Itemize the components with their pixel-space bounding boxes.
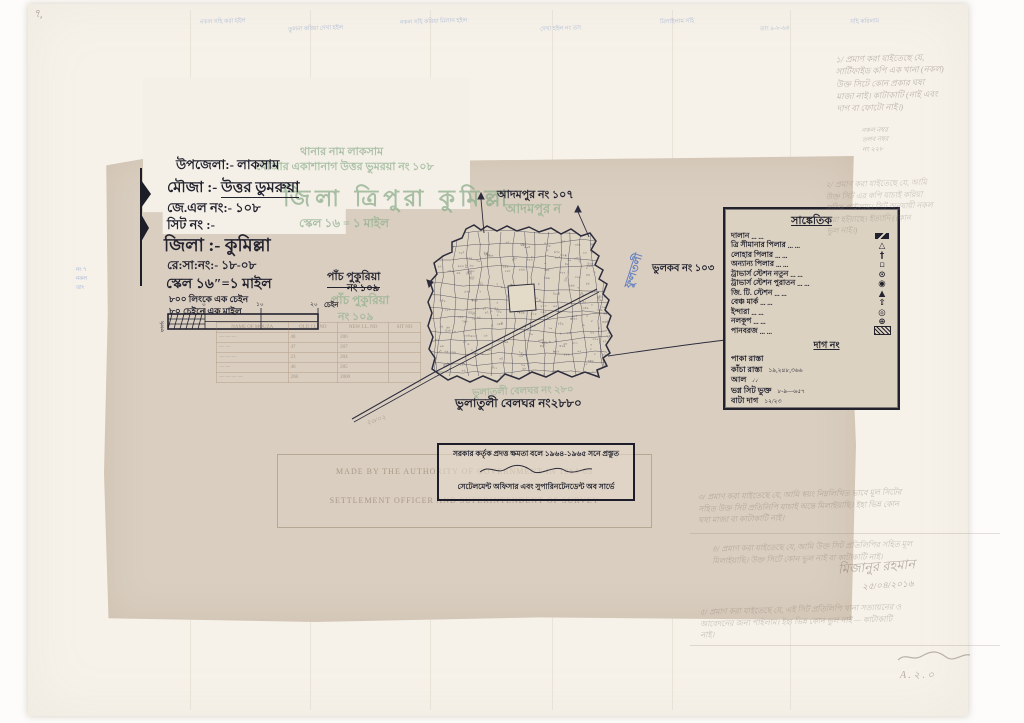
svg-text:৭৫: ৭৫ xyxy=(471,317,475,321)
svg-text:৯৫: ৯৫ xyxy=(553,304,557,308)
scanned-mouza-map-page: ৭, নকল সহি করা হইলতুলনা করিয়া দেখা হইলন… xyxy=(0,0,1024,723)
svg-text:৩১০: ৩১০ xyxy=(593,337,599,341)
svg-text:৬৭৫: ৬৭৫ xyxy=(554,250,560,254)
upazila-label: উপজেলা:- লাকসাম xyxy=(176,156,279,177)
top-margin-note: মিলাইলাম সহি xyxy=(660,15,695,27)
svg-text:০: ০ xyxy=(471,348,473,352)
svg-text:২৮৫: ২৮৫ xyxy=(478,283,484,287)
legend-symbol-icon: ▫ xyxy=(872,260,892,270)
svg-text:০৪৩: ০৪৩ xyxy=(574,256,580,260)
svg-text:৯: ৯ xyxy=(583,323,585,327)
svg-text:০৩৪: ০৩৪ xyxy=(538,338,544,342)
svg-text:৫: ৫ xyxy=(585,362,587,366)
legend-item: পানবরজ... ... xyxy=(731,327,892,337)
svg-text:৩৩৩: ৩৩৩ xyxy=(597,262,603,266)
neighbor-label-south: ভুলাতুলী বেলঘর নং২৮৮০ xyxy=(455,395,582,415)
svg-text:০: ০ xyxy=(590,359,592,363)
svg-text:২৯৩: ২৯৩ xyxy=(606,273,612,277)
svg-text:৯১০: ৯১০ xyxy=(531,312,537,316)
mouza-value: উত্তর ডুমরুয়া xyxy=(221,180,299,198)
svg-text:৯৭: ৯৭ xyxy=(485,310,489,314)
svg-text:৯: ৯ xyxy=(544,241,546,245)
svg-text:৭২৯: ৭২৯ xyxy=(466,256,472,260)
svg-text:৫৬: ৫৬ xyxy=(462,369,466,373)
svg-text:১৬: ১৬ xyxy=(439,325,443,329)
svg-text:৯৮: ৯৮ xyxy=(522,367,526,371)
svg-text:৯৪৯: ৯৪৯ xyxy=(503,265,509,269)
svg-text:৮: ৮ xyxy=(553,350,555,354)
legend-road-item: বাটা দাগ১২/২৩ xyxy=(731,397,892,408)
svg-text:০৩: ০৩ xyxy=(506,240,510,244)
svg-text:৫: ৫ xyxy=(598,326,600,330)
neighbor-label-north: আদমপুর নং ১০৭ xyxy=(497,186,573,205)
svg-text:২: ২ xyxy=(479,289,481,293)
svg-text:৫৬৯: ৫৬৯ xyxy=(519,268,525,272)
top-margin-note: সহি করিলাম xyxy=(850,15,879,27)
svg-text:০২: ০২ xyxy=(577,349,581,353)
svg-text:৯৬: ৯৬ xyxy=(477,316,481,320)
svg-text:৩: ৩ xyxy=(590,343,592,347)
legend-symbol-icon: △ xyxy=(872,241,892,251)
legend-symbol-icon: ⇧ xyxy=(872,298,892,308)
svg-text:৮৪: ৮৪ xyxy=(586,273,590,277)
stamp-line3: সেটেলমেন্ট অফিসার এবং সুপারিনটেনডেন্ট অব… xyxy=(439,482,633,494)
svg-text:৭৬৬: ৭৬৬ xyxy=(544,276,550,280)
svg-text:০৭: ০৭ xyxy=(483,307,487,311)
legend-symbol-icon: ▲ xyxy=(872,289,892,299)
svg-text:৩: ৩ xyxy=(477,307,479,311)
svg-text:১: ১ xyxy=(567,270,569,274)
top-margin-note: তাং ৯-৮-৬৪ xyxy=(760,22,790,34)
svg-text:০২: ০২ xyxy=(472,312,476,316)
svg-text:৭: ৭ xyxy=(578,260,580,264)
svg-text:৮১: ৮১ xyxy=(512,257,516,261)
svg-text:৯০৭: ৯০৭ xyxy=(484,251,490,255)
svg-text:১৮৯: ১৮৯ xyxy=(597,308,603,312)
svg-text:৯২: ৯২ xyxy=(561,239,565,243)
top-margin-note: নকল সহি করা হইল xyxy=(200,15,246,28)
svg-text:৪: ৪ xyxy=(538,282,540,286)
svg-text:৫: ৫ xyxy=(591,303,593,307)
svg-text:৬: ৬ xyxy=(549,340,551,344)
legend-items: দালান... ...ত্রি সীমানার পিলার... ...△লো… xyxy=(731,232,892,337)
legend-item: ইন্দারা... ...◎ xyxy=(731,308,892,318)
svg-text:৮৮৬: ৮৮৬ xyxy=(564,352,570,356)
svg-text:৭: ৭ xyxy=(446,242,448,246)
svg-text:৫১: ৫১ xyxy=(602,373,606,377)
svg-text:৪: ৪ xyxy=(558,291,560,295)
svg-text:৭০: ৭০ xyxy=(529,332,533,336)
svg-text:১৬: ১৬ xyxy=(483,334,487,338)
svg-text:৯: ৯ xyxy=(501,285,503,289)
svg-text:১০২: ১০২ xyxy=(444,307,450,311)
svg-text:৭: ৭ xyxy=(513,336,515,340)
svg-text:৮: ৮ xyxy=(560,331,562,335)
stamp-line1: সরকার কর্তৃক প্রদত্ত ক্ষমতা বলে ১৯৬৪-১৯৬… xyxy=(439,449,633,461)
faint-rule xyxy=(690,533,1000,534)
svg-text:৫৫৬: ৫৫৬ xyxy=(464,334,470,338)
svg-text:২: ২ xyxy=(497,313,499,317)
svg-text:৪৪৪: ৪৪৪ xyxy=(602,320,608,324)
legend-symbol-icon xyxy=(872,326,892,338)
svg-text:০৩১: ০৩১ xyxy=(469,275,475,279)
legend-box: সাঙ্কেতিক দালান... ...ত্রি সীমানার পিলার… xyxy=(723,207,900,410)
svg-text:৪৯৬: ৪৯৬ xyxy=(569,284,575,288)
svg-text:৩২২: ৩২২ xyxy=(458,315,464,319)
pencil-note-right-mid: নকল নম্বরতলব নম্বরনং ২২৮ xyxy=(862,126,889,155)
svg-text:৯২৬: ৯২৬ xyxy=(464,289,470,293)
svg-text:০০০: ০০০ xyxy=(442,240,448,244)
svg-text:০: ০ xyxy=(591,318,593,322)
svg-text:১: ১ xyxy=(526,251,528,255)
svg-text:০: ০ xyxy=(547,248,549,252)
svg-text:১: ১ xyxy=(592,369,594,373)
svg-text:৬০৪: ৬০৪ xyxy=(524,245,530,249)
svg-text:৯৫৩: ৯৫৩ xyxy=(527,258,533,262)
svg-text:০: ০ xyxy=(543,372,545,376)
svg-text:০১: ০১ xyxy=(463,340,467,344)
neighbor-label-east: ভুলকব নং ১০৩ xyxy=(652,261,714,278)
svg-text:২: ২ xyxy=(437,338,439,342)
mouza-label: মৌজা :- xyxy=(167,180,217,196)
pencil-initial: A . ২ . ০ xyxy=(900,668,934,685)
svg-text:০: ০ xyxy=(590,347,592,351)
legend-road-item: কাঁচা রাস্তা১৯,২৪৮,৩৬৬ xyxy=(731,365,892,376)
legend-symbol-icon: ◎ xyxy=(872,308,892,318)
svg-text:৬৪০: ৬৪০ xyxy=(440,298,446,302)
svg-text:৪৫৯: ৪৫৯ xyxy=(587,262,593,266)
faint-rule xyxy=(690,645,1000,646)
svg-text:৬: ৬ xyxy=(598,296,600,300)
svg-text:৩১১: ৩১১ xyxy=(572,341,578,345)
svg-text:৪০: ৪০ xyxy=(553,292,557,296)
svg-text:৫৫: ৫৫ xyxy=(583,251,587,255)
svg-text:৪: ৪ xyxy=(565,277,567,281)
svg-text:০: ০ xyxy=(454,329,456,333)
svg-text:১: ১ xyxy=(544,342,546,346)
left-edge-binder-marks xyxy=(134,168,154,290)
svg-text:৯৩: ৯৩ xyxy=(470,263,474,267)
svg-text:১৬৮: ১৬৮ xyxy=(544,268,550,272)
svg-text:৬: ৬ xyxy=(539,298,541,302)
svg-text:২৪৪: ২৪৪ xyxy=(497,322,503,326)
legend-item: বেঞ্চ মার্ক... ...⇧ xyxy=(731,299,892,309)
svg-text:৬৭: ৬৭ xyxy=(563,342,567,346)
neighbor-label-west-2: নং ১০৯ xyxy=(347,281,379,298)
svg-text:২: ২ xyxy=(492,365,494,369)
svg-text:৩৯৯: ৩৯৯ xyxy=(575,243,581,247)
svg-text:২: ২ xyxy=(440,349,442,353)
pencil-note-bottom-3: ৫/ প্রমাণ করা যাইতেছে যে, এই সিট প্রতিলি… xyxy=(700,601,902,641)
svg-text:৭৮৮: ৭৮৮ xyxy=(462,320,468,324)
svg-text:০: ০ xyxy=(586,314,588,318)
svg-text:৮২: ৮২ xyxy=(438,265,442,269)
stamp-signature-scribble xyxy=(476,461,596,477)
svg-text:৭০: ৭০ xyxy=(476,259,480,263)
legend-symbol-icon: † xyxy=(872,251,892,261)
svg-text:৫৯২: ৫৯২ xyxy=(460,363,466,367)
svg-text:০৫৫: ০৫৫ xyxy=(566,330,572,334)
svg-text:৬: ৬ xyxy=(467,342,469,346)
top-margin-note: তুলনা করিয়া দেখা হইল xyxy=(288,22,344,35)
svg-text:৯: ৯ xyxy=(465,265,467,269)
svg-text:৩৪: ৩৪ xyxy=(499,357,503,361)
svg-text:৭: ৭ xyxy=(577,286,579,290)
svg-text:২: ২ xyxy=(554,339,556,343)
svg-text:৮৪০: ৮৪০ xyxy=(558,322,564,326)
svg-text:৪: ৪ xyxy=(491,324,493,328)
svg-text:১০: ১০ xyxy=(548,326,552,330)
svg-text:৮৫০: ৮৫০ xyxy=(561,253,567,257)
svg-text:০: ০ xyxy=(202,301,206,308)
mouza-line: মৌজা :- উত্তর ডুমরুয়া xyxy=(167,176,299,201)
left-margin-notes: নং ৭নকলতাং xyxy=(76,266,87,292)
svg-text:৬১৩: ৬১৩ xyxy=(470,334,476,338)
svg-text:১৪৬: ১৪৬ xyxy=(582,306,588,310)
svg-text:২: ২ xyxy=(491,309,493,313)
svg-text:৮৫৫: ৮৫৫ xyxy=(560,270,566,274)
svg-text:১৬৩: ১৬৩ xyxy=(540,310,546,314)
svg-text:৬৮: ৬৮ xyxy=(446,325,450,329)
svg-text:৫০৭: ৫০৭ xyxy=(459,250,465,254)
svg-text:৯৩৩: ৯৩৩ xyxy=(458,264,464,268)
svg-text:১০: ১০ xyxy=(256,301,264,308)
svg-text:৬১৮: ৬১৮ xyxy=(572,314,578,318)
legend-symbol-icon: ◉ xyxy=(872,279,892,289)
top-margin-note: দেখা হইল নং তাং xyxy=(540,22,582,34)
svg-text:৮৬: ৮৬ xyxy=(607,242,611,246)
pencil-note-right-2: ২/ প্রমাণ করা যাইতেছে যে, আমিউক্ত সিট এর… xyxy=(825,177,933,238)
svg-text:৩: ৩ xyxy=(594,270,596,274)
pencil-note-right-top: ১/ প্রমাণ করা যাইতেছে যে,সার্টিফাইড কপি … xyxy=(835,51,945,115)
svg-text:৫: ৫ xyxy=(525,378,527,382)
svg-text:২৮৫: ২৮৫ xyxy=(521,353,527,357)
svg-text:৯৮: ৯৮ xyxy=(586,282,590,286)
legend-subtitle: দাগ নং xyxy=(761,339,892,354)
pencil-note-bottom-1: ৩/ প্রমাণ করা যাইতেছে যে, আমি স্বয়ং নিম… xyxy=(698,486,903,526)
svg-text:১৫৮: ১৫৮ xyxy=(505,269,511,273)
authority-stamp-box: সরকার কর্তৃক প্রদত্ত ক্ষমতা বলে ১৯৬৪-১৯৬… xyxy=(437,443,635,501)
pencil-signature-scribble xyxy=(894,648,974,666)
svg-text:০: ০ xyxy=(544,261,546,265)
svg-text:৮০: ৮০ xyxy=(521,363,525,367)
svg-text:৭৪০: ৭৪০ xyxy=(496,310,502,314)
svg-text:১৯৯: ১৯৯ xyxy=(450,350,456,354)
legend-symbol-icon: ⊙ xyxy=(872,270,892,280)
svg-text:২০: ২০ xyxy=(590,378,594,382)
svg-text:৮৫: ৮৫ xyxy=(590,331,594,335)
svg-text:৩২০: ৩২০ xyxy=(575,275,581,279)
svg-text:৪৫: ৪৫ xyxy=(565,262,569,266)
scale-bar-side-label: ফার্লং xyxy=(159,321,166,333)
svg-text:৩৬: ৩৬ xyxy=(456,271,460,275)
legend-road-items: পাকা রাস্তাকাঁচা রাস্তা১৯,২৪৮,৩৬৬আল৴৴ভগ্… xyxy=(731,355,892,408)
central-large-plot xyxy=(508,284,536,312)
svg-text:৭: ৭ xyxy=(496,282,498,286)
svg-text:০৬: ০৬ xyxy=(440,344,444,348)
svg-text:৮৬৪: ৮৬৪ xyxy=(472,299,478,303)
svg-text:০১৩: ০১৩ xyxy=(540,303,546,307)
svg-text:০: ০ xyxy=(586,265,588,269)
svg-text:২০: ২০ xyxy=(310,301,318,308)
top-margin-note: নকল সহি করিয়া মিলান হইল xyxy=(400,15,467,28)
svg-text:৩৭৫: ৩৭৫ xyxy=(448,269,454,273)
svg-text:০: ০ xyxy=(594,352,596,356)
svg-text:৫: ৫ xyxy=(496,300,498,304)
svg-text:৭৪২: ৭৪২ xyxy=(601,246,607,250)
svg-text:২৬: ২৬ xyxy=(444,350,448,354)
